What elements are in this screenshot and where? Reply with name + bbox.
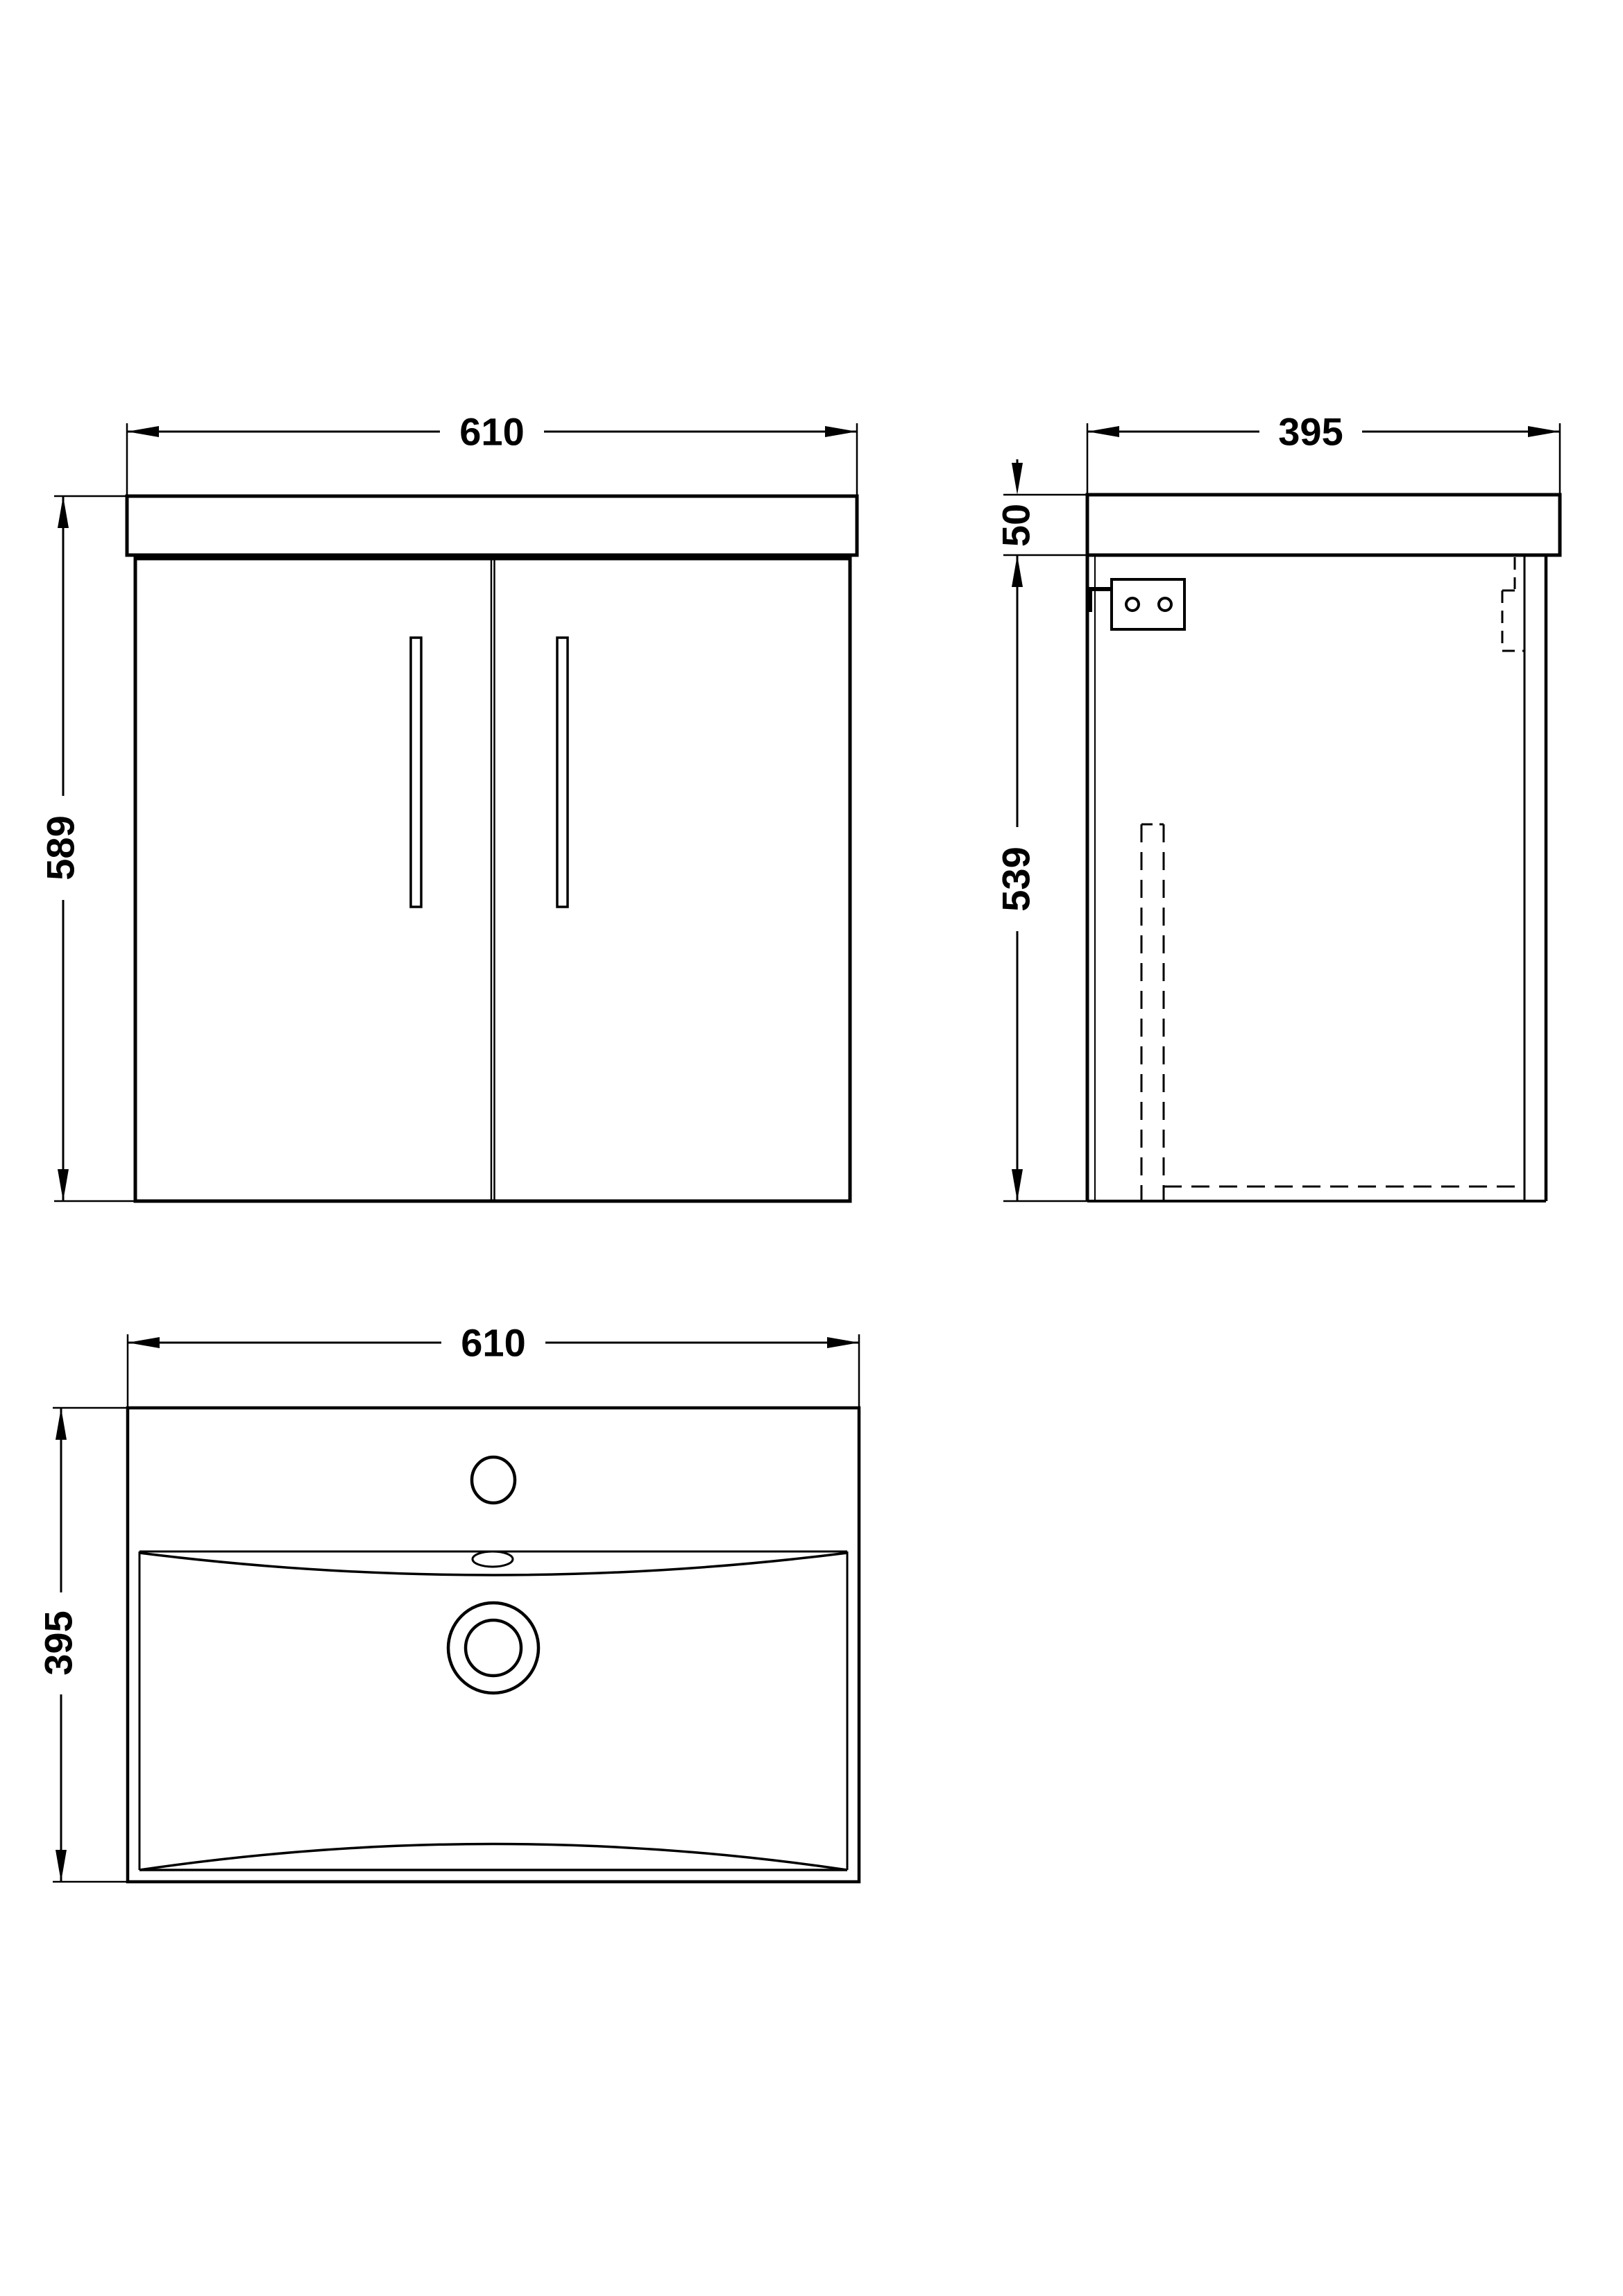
basin-bowl [139,1551,847,1870]
side-depth-value: 395 [1278,410,1343,454]
worktop-front [127,496,857,555]
arrowhead-up-icon [58,496,69,528]
plan-width-value: 610 [461,1321,525,1365]
worktop-thickness-value: 50 [994,504,1038,547]
bracket-body [1112,579,1184,629]
cabinet-side [1087,555,1546,1201]
arrowhead-down-icon [1012,1169,1023,1201]
front-height-value: 589 [39,815,83,880]
hidden-lines [1141,557,1524,1201]
door-handle-right [557,638,568,907]
front-elevation-view: 610 589 [39,410,858,1202]
arrowhead-up-icon [56,1408,67,1440]
plan-view: 610 395 [37,1321,860,1882]
arrowhead-down-icon [56,1850,67,1882]
front-width-value: 610 [459,410,524,454]
drain-outer-ring [448,1603,538,1693]
cabinet-height-value: 539 [994,847,1038,911]
plan-depth-dimension: 395 [37,1408,128,1882]
drawing-sheet: 610 589 [0,0,1623,2296]
worktop-side [1087,495,1560,555]
arrowhead-left-icon [128,1337,160,1348]
overflow-slot [473,1551,513,1567]
arrowhead-down-icon [1012,463,1023,495]
arrowhead-right-icon [1528,426,1560,437]
bowl-front-slope-curve [139,1844,847,1871]
bowl-back-slope-curve [139,1553,847,1575]
arrowhead-down-icon [58,1169,69,1201]
bracket-screw-hole [1159,598,1171,611]
arrowhead-right-icon [825,426,857,437]
side-worktop-thickness-dimension: 50 [994,459,1088,555]
arrowhead-left-icon [1087,426,1119,437]
drain-waste [448,1603,538,1693]
bracket-screw-hole [1126,598,1139,611]
front-height-dimension: 589 [39,496,136,1201]
arrowhead-right-icon [827,1337,859,1348]
side-depth-dimension: 395 [1087,410,1560,495]
drain-inner-ring [466,1620,521,1676]
plan-depth-value: 395 [37,1610,80,1675]
door-handle-left [411,638,421,907]
front-width-dimension: 610 [127,410,857,497]
side-cabinet-height-dimension: 539 [994,555,1088,1201]
basin-outer-rim [128,1408,859,1882]
vanity-dimension-drawing: 610 589 [0,0,1623,2296]
plan-width-dimension: 610 [128,1321,859,1409]
arrowhead-up-icon [1012,555,1023,587]
cabinet-front [135,559,850,1201]
wall-bracket [1088,579,1184,629]
tap-hole [472,1457,515,1503]
side-elevation-view: 395 50 539 [994,410,1561,1202]
arrowhead-left-icon [127,426,159,437]
